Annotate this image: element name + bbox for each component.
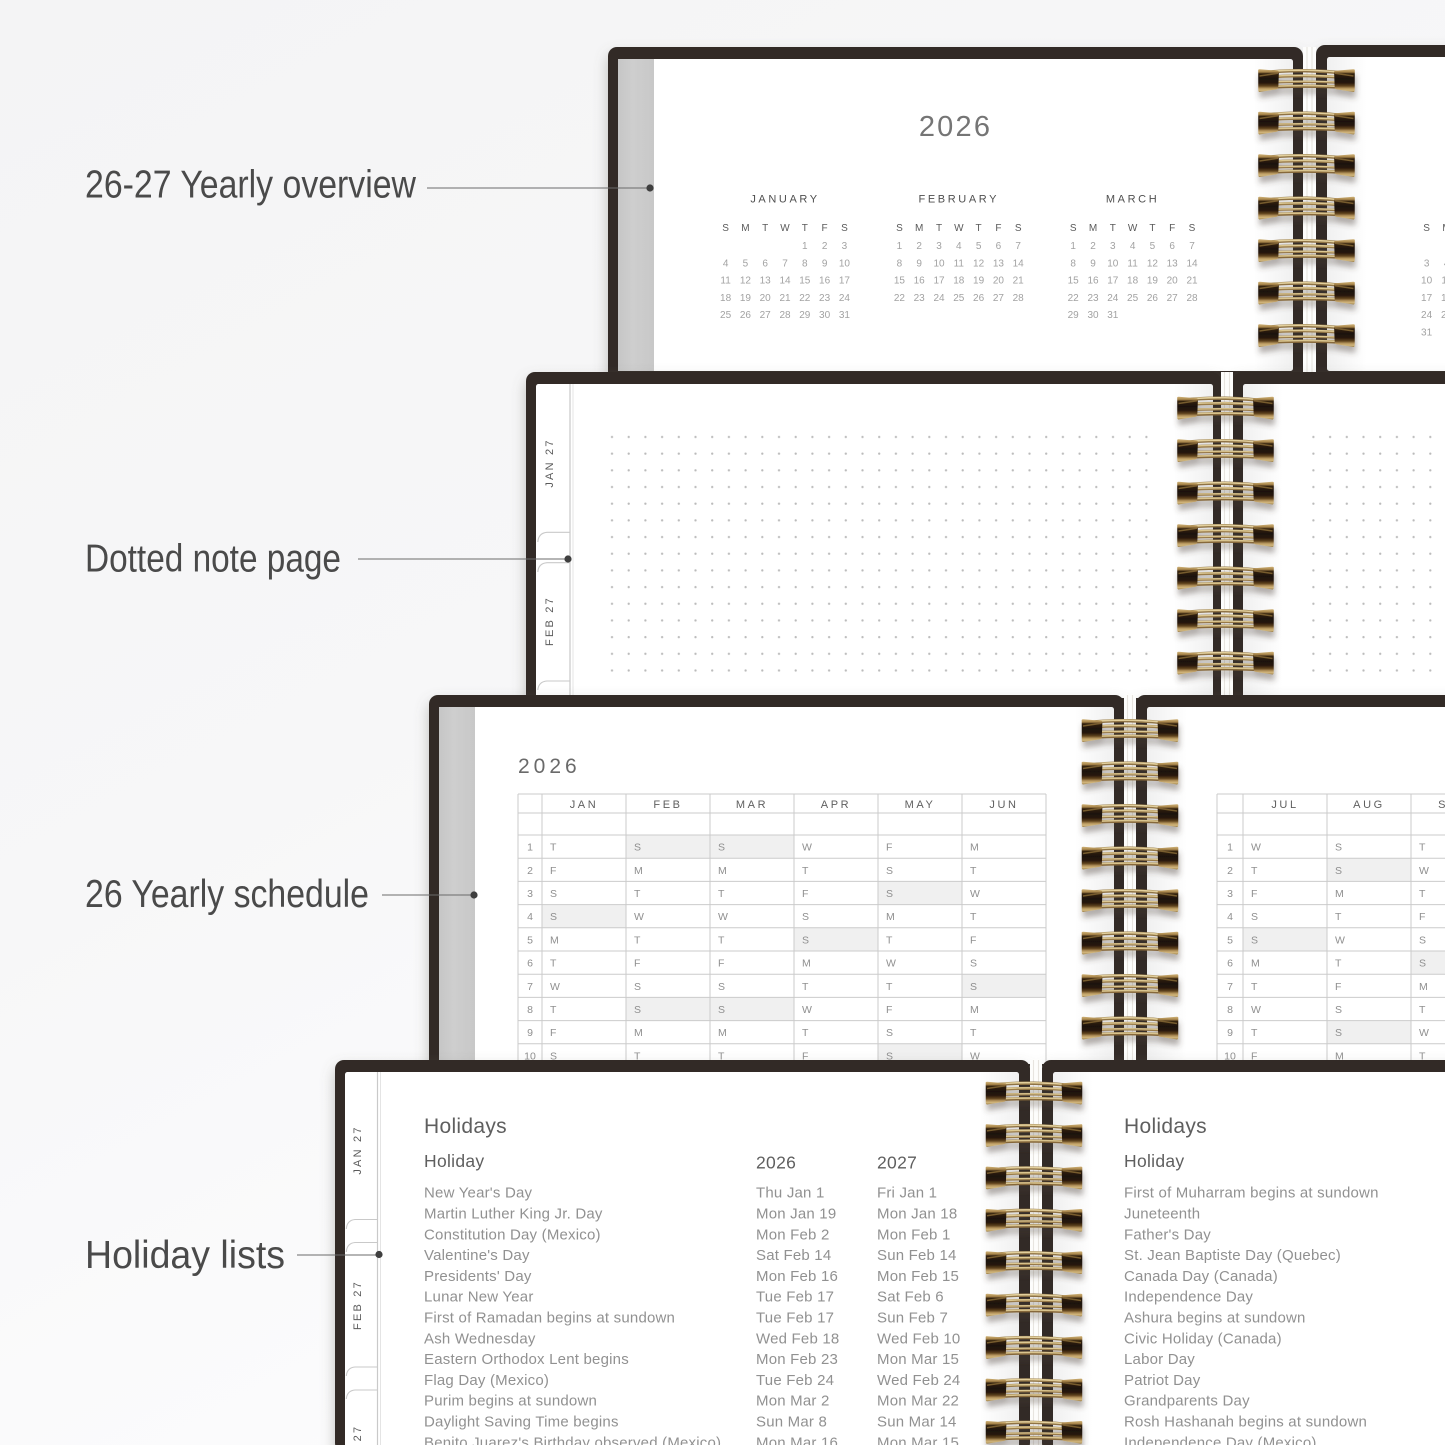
svg-text:26-27 Yearly overview: 26-27 Yearly overview <box>85 164 417 207</box>
svg-text:Holiday lists: Holiday lists <box>85 1234 285 1277</box>
svg-text:27: 27 <box>352 1425 364 1442</box>
svg-text:2027: 2027 <box>877 1153 917 1173</box>
svg-text:Sun Feb 14: Sun Feb 14 <box>877 1247 957 1264</box>
svg-text:JAN 27: JAN 27 <box>352 1125 364 1174</box>
svg-text:Sun Mar 14: Sun Mar 14 <box>877 1414 957 1431</box>
svg-text:Labor Day: Labor Day <box>1124 1351 1195 1368</box>
svg-text:Wed Feb 24: Wed Feb 24 <box>877 1372 960 1389</box>
svg-text:Dotted note page: Dotted note page <box>85 538 341 581</box>
svg-text:Constitution Day (Mexico): Constitution Day (Mexico) <box>424 1226 601 1243</box>
svg-text:Mon Feb 23: Mon Feb 23 <box>756 1351 838 1368</box>
svg-text:Mon Mar 16: Mon Mar 16 <box>756 1434 838 1445</box>
svg-text:JANUARY: JANUARY <box>750 194 819 206</box>
svg-text:Wed Feb 10: Wed Feb 10 <box>877 1330 960 1347</box>
svg-text:Mon Feb 15: Mon Feb 15 <box>877 1268 959 1285</box>
svg-text:Valentine's Day: Valentine's Day <box>424 1247 530 1264</box>
svg-text:Daylight Saving Time begins: Daylight Saving Time begins <box>424 1414 619 1431</box>
svg-text:Tue Feb 17: Tue Feb 17 <box>756 1310 834 1327</box>
svg-text:Ash Wednesday: Ash Wednesday <box>424 1330 536 1347</box>
svg-text:31: 31 <box>1421 328 1433 339</box>
svg-text:Fri Jan 1: Fri Jan 1 <box>877 1185 937 1202</box>
svg-text:Sun Mar 8: Sun Mar 8 <box>756 1414 827 1431</box>
svg-text:Mon Mar 2: Mon Mar 2 <box>756 1393 830 1410</box>
svg-text:Sun Feb 7: Sun Feb 7 <box>877 1310 948 1327</box>
svg-text:Holidays: Holidays <box>1124 1115 1207 1138</box>
svg-text:Tue Feb 17: Tue Feb 17 <box>756 1289 834 1306</box>
svg-text:Mon Mar 22: Mon Mar 22 <box>877 1393 959 1410</box>
svg-text:Mon Mar 15: Mon Mar 15 <box>877 1351 959 1368</box>
svg-text:Mon Jan 18: Mon Jan 18 <box>877 1206 957 1223</box>
svg-text:FEB 27: FEB 27 <box>352 1280 364 1330</box>
svg-text:Mon Feb 16: Mon Feb 16 <box>756 1268 838 1285</box>
svg-text:Benito Juarez's Birthday obser: Benito Juarez's Birthday observed (Mexic… <box>424 1434 721 1445</box>
svg-text:2026: 2026 <box>518 755 581 778</box>
svg-text:Mon Jan 19: Mon Jan 19 <box>756 1206 836 1223</box>
svg-text:First of Muharram begins at su: First of Muharram begins at sundown <box>1124 1185 1379 1202</box>
svg-text:2026: 2026 <box>756 1153 796 1173</box>
svg-text:26 Yearly schedule: 26 Yearly schedule <box>85 873 369 916</box>
svg-text:Holidays: Holidays <box>424 1115 507 1138</box>
svg-text:293031: 293031 <box>1068 310 1119 321</box>
svg-text:Holiday: Holiday <box>424 1151 484 1171</box>
svg-text:Sat Feb 14: Sat Feb 14 <box>756 1247 831 1264</box>
svg-text:Presidents' Day: Presidents' Day <box>424 1268 532 1285</box>
svg-text:JAN 27: JAN 27 <box>544 438 556 487</box>
svg-text:Wed Feb 18: Wed Feb 18 <box>756 1330 839 1347</box>
svg-text:MARCH: MARCH <box>1106 194 1159 206</box>
svg-text:FEBRUARY: FEBRUARY <box>919 194 1000 206</box>
svg-text:St. Jean Baptiste Day (Quebec): St. Jean Baptiste Day (Quebec) <box>1124 1247 1341 1264</box>
svg-text:Mon Feb 2: Mon Feb 2 <box>756 1226 830 1243</box>
svg-text:Canada Day (Canada): Canada Day (Canada) <box>1124 1268 1278 1285</box>
svg-text:Civic Holiday (Canada): Civic Holiday (Canada) <box>1124 1330 1282 1347</box>
svg-text:Purim begins at sundown: Purim begins at sundown <box>424 1393 597 1410</box>
svg-text:Tue Feb 24: Tue Feb 24 <box>756 1372 834 1389</box>
svg-text:Juneteenth: Juneteenth <box>1124 1206 1200 1223</box>
svg-text:2026: 2026 <box>919 111 992 143</box>
svg-text:New Year's Day: New Year's Day <box>424 1185 533 1202</box>
svg-text:Eastern Orthodox Lent begins: Eastern Orthodox Lent begins <box>424 1351 629 1368</box>
svg-text:Mon Mar 15: Mon Mar 15 <box>877 1434 959 1445</box>
svg-text:First of Ramadan begins at sun: First of Ramadan begins at sundown <box>424 1310 675 1327</box>
svg-text:Thu Jan 1: Thu Jan 1 <box>756 1185 825 1202</box>
svg-text:Mon Feb 1: Mon Feb 1 <box>877 1226 951 1243</box>
svg-text:Independence Day (Mexico): Independence Day (Mexico) <box>1124 1434 1317 1445</box>
svg-text:Patriot Day: Patriot Day <box>1124 1372 1201 1389</box>
svg-text:Holiday: Holiday <box>1124 1151 1184 1171</box>
svg-text:FEB 27: FEB 27 <box>544 596 556 646</box>
svg-text:Ashura begins at sundown: Ashura begins at sundown <box>1124 1310 1306 1327</box>
svg-text:Flag Day (Mexico): Flag Day (Mexico) <box>424 1372 549 1389</box>
svg-text:Father's Day: Father's Day <box>1124 1226 1211 1243</box>
svg-text:Lunar New Year: Lunar New Year <box>424 1289 534 1306</box>
svg-text:Independence Day: Independence Day <box>1124 1289 1253 1306</box>
svg-text:Sat Feb 6: Sat Feb 6 <box>877 1289 944 1306</box>
svg-text:Grandparents Day: Grandparents Day <box>1124 1393 1250 1410</box>
svg-text:Rosh Hashanah begins at sundow: Rosh Hashanah begins at sundown <box>1124 1414 1367 1431</box>
svg-text:Martin Luther King Jr. Day: Martin Luther King Jr. Day <box>424 1206 603 1223</box>
